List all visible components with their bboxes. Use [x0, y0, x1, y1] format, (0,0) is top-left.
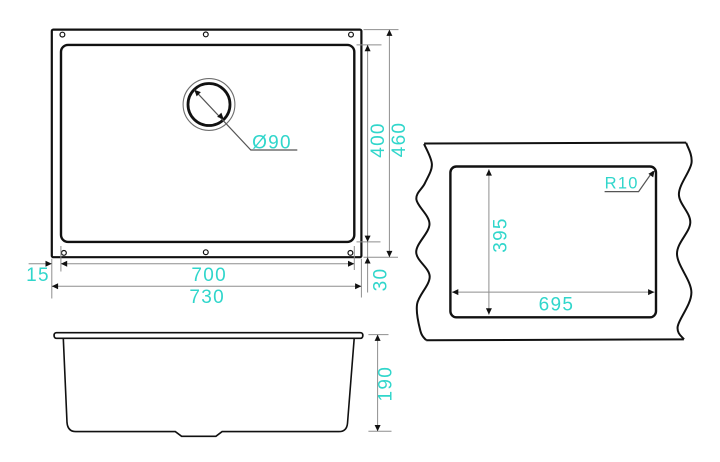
svg-text:Ø90: Ø90 [252, 133, 292, 154]
svg-text:395: 395 [491, 217, 512, 253]
svg-text:190: 190 [375, 366, 396, 402]
svg-text:15: 15 [26, 265, 50, 286]
svg-text:400: 400 [368, 122, 389, 158]
svg-text:730: 730 [189, 287, 225, 308]
svg-text:R10: R10 [605, 175, 639, 193]
svg-text:700: 700 [191, 265, 227, 286]
svg-text:460: 460 [389, 122, 410, 158]
svg-text:695: 695 [539, 295, 575, 316]
svg-text:30: 30 [370, 268, 391, 292]
